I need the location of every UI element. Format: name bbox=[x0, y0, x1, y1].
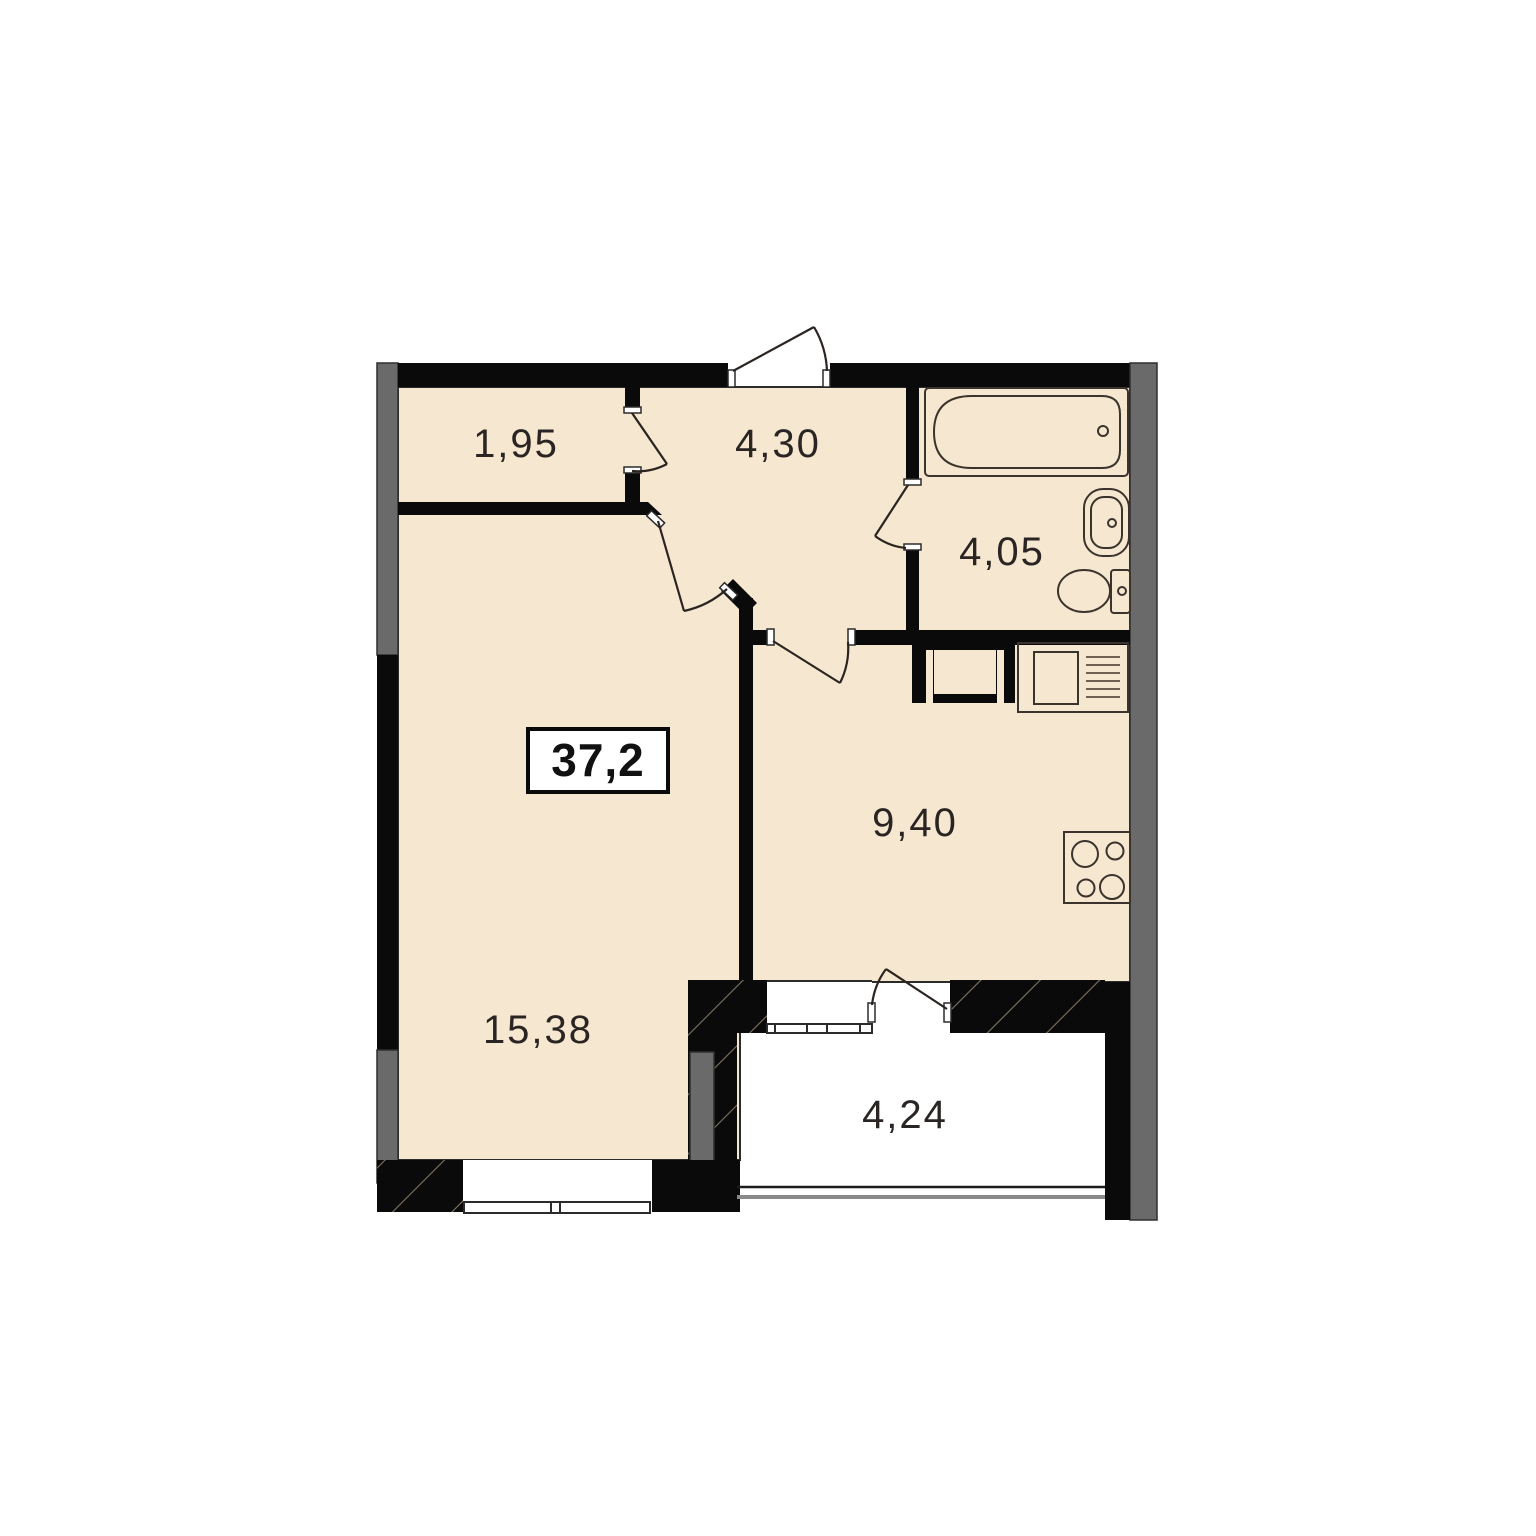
hall-kitchen-wall-stub bbox=[739, 630, 768, 645]
balcony-glazing bbox=[737, 1187, 1105, 1197]
entrance-door bbox=[733, 327, 827, 371]
right-wall-gray bbox=[1130, 363, 1157, 1220]
room-label-storage: 1,95 bbox=[473, 422, 559, 466]
room-label-bathroom: 4,05 bbox=[959, 530, 1045, 574]
stove-icon bbox=[1064, 832, 1130, 903]
storage-wall-right-top bbox=[625, 387, 640, 408]
living-room-window bbox=[463, 1160, 652, 1213]
bottom-left-corner-wall bbox=[377, 1160, 463, 1212]
balcony-window-sill bbox=[767, 1024, 872, 1033]
ventilation-shaft-icon bbox=[912, 645, 1015, 703]
right-wall-black-balcony bbox=[1105, 982, 1130, 1220]
room-label-hallway: 4,30 bbox=[735, 422, 821, 466]
storage-wall-bottom bbox=[398, 502, 648, 515]
room-label-kitchen: 9,40 bbox=[872, 801, 958, 845]
total-area-badge: 37,2 bbox=[528, 729, 668, 792]
left-wall-gray-upper bbox=[377, 363, 398, 655]
top-wall-right bbox=[830, 363, 1130, 387]
floor-plan-drawing: 1,95 4,30 4,05 9,40 15,38 4,24 37,2 bbox=[0, 0, 1536, 1536]
top-wall-left bbox=[398, 363, 728, 387]
window-frame bbox=[464, 1202, 650, 1213]
total-area-value: 37,2 bbox=[551, 734, 645, 786]
bottom-wall-middle bbox=[652, 1160, 740, 1212]
floor-plan-page: 1,95 4,30 4,05 9,40 15,38 4,24 37,2 bbox=[0, 0, 1536, 1536]
room-label-balcony: 4,24 bbox=[862, 1093, 948, 1137]
balcony-window-door-unit bbox=[767, 980, 872, 1033]
balcony-wall-left bbox=[688, 980, 767, 1033]
living-kitchen-wall bbox=[739, 598, 753, 982]
bathroom-wall-bottom bbox=[906, 550, 919, 632]
left-wall-black-mid bbox=[377, 655, 398, 1050]
room-label-living-room: 15,38 bbox=[483, 1008, 593, 1052]
balcony-wall-right bbox=[950, 980, 1105, 1033]
bathroom-wall-top bbox=[906, 387, 919, 480]
